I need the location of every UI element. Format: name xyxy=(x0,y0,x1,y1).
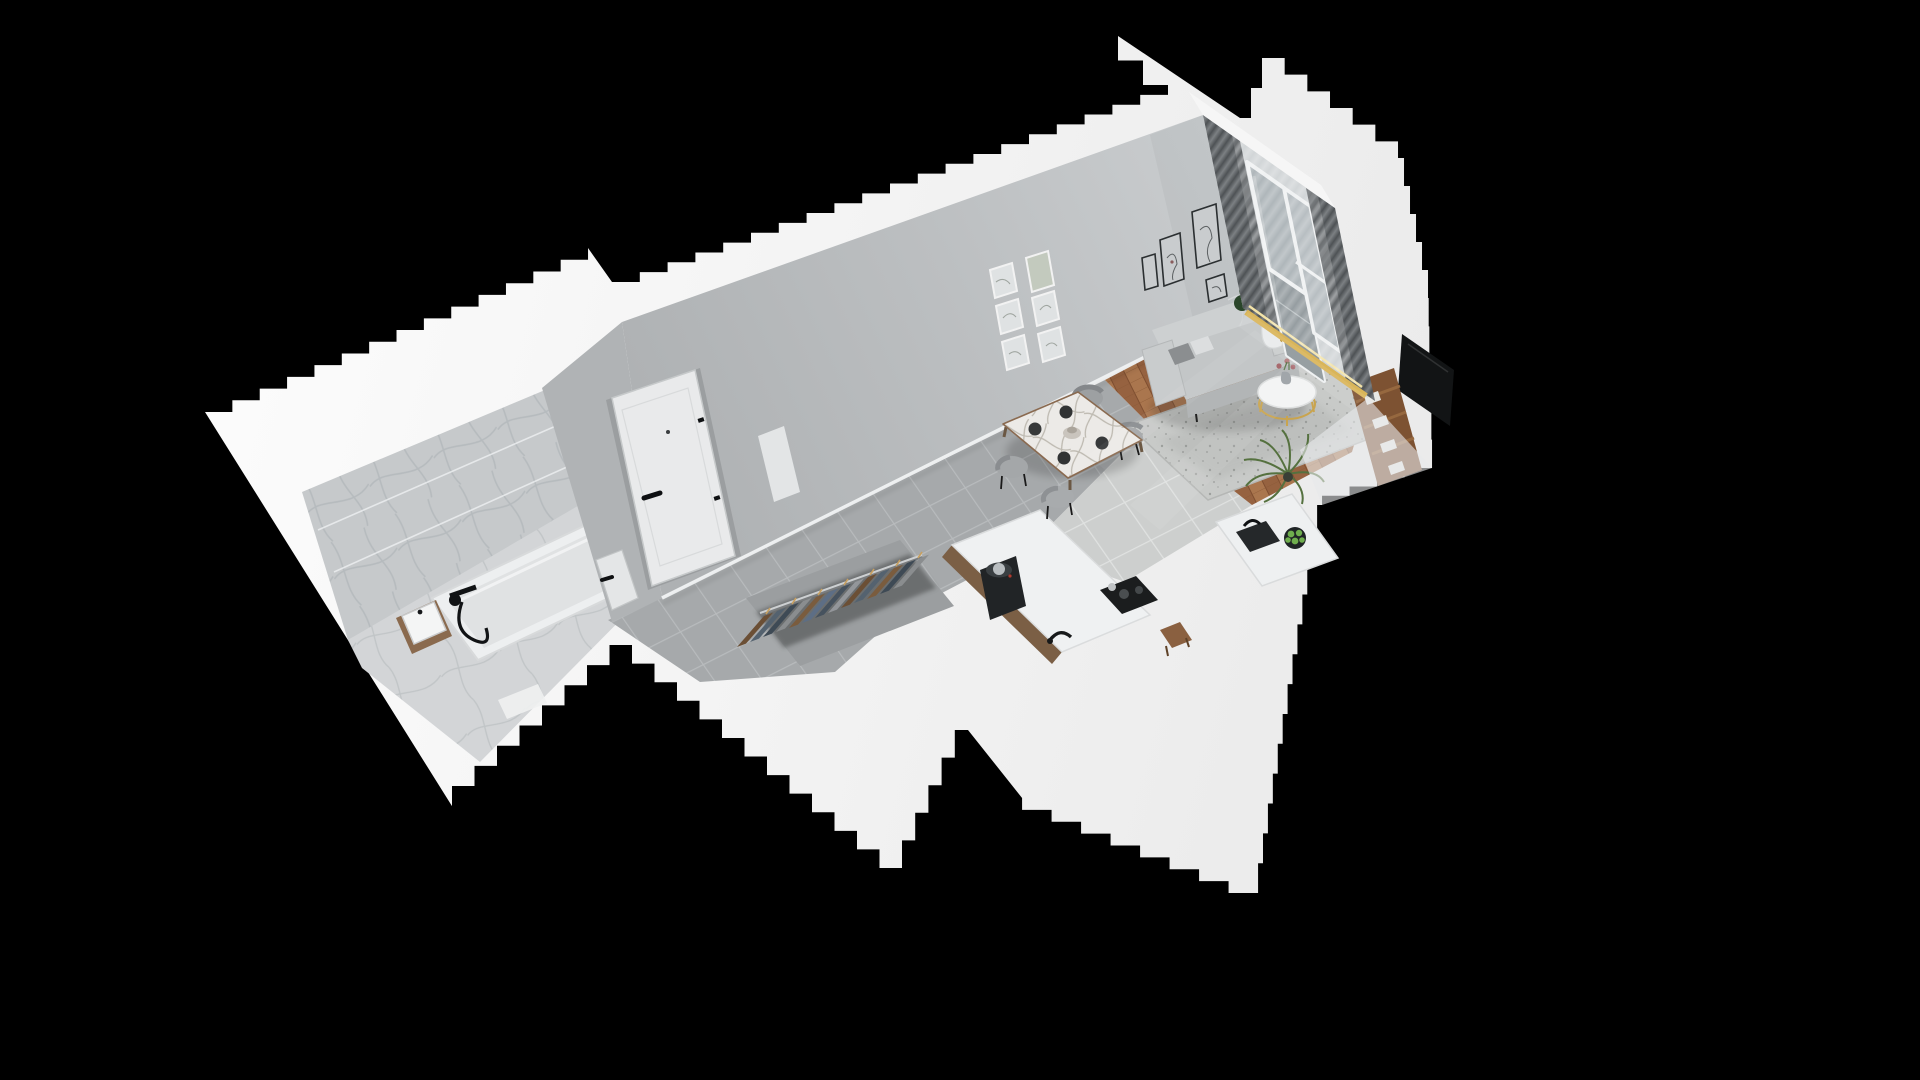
botanical-dot xyxy=(1170,260,1173,263)
kitchen-faucet-base xyxy=(1047,638,1053,644)
burner-2 xyxy=(1135,586,1143,594)
peephole xyxy=(666,430,670,434)
small-pot xyxy=(1108,583,1116,591)
burner xyxy=(1119,589,1129,599)
basin-tap xyxy=(418,610,423,615)
apartment-render: 3D isometric cutaway render of a studio … xyxy=(0,0,1920,1080)
